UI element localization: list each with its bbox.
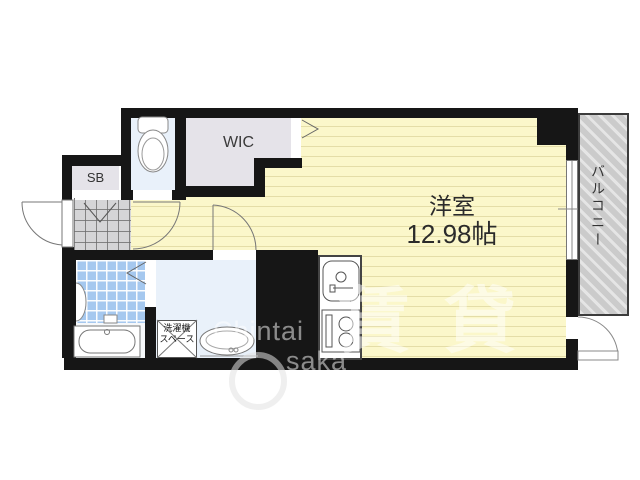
balcony-doorway	[566, 317, 578, 339]
wall-wic-bottom	[175, 186, 265, 197]
watermark-brand-top: Chintai	[213, 316, 304, 347]
front-door-icon	[22, 200, 73, 247]
wall-wic-step-vertical	[254, 158, 265, 197]
laundry-line1: 洗濯機	[156, 323, 198, 334]
balcony-door-icon	[578, 317, 618, 360]
wall-top	[121, 108, 578, 118]
toilet-room-floor	[131, 118, 175, 190]
washroom-doorway	[213, 250, 256, 260]
wall-toilet-left	[121, 108, 131, 200]
wall-right-mid	[566, 260, 578, 317]
main-room-area: 12.98帖	[372, 220, 532, 249]
wall-bath-washroom-divider	[145, 307, 156, 358]
window	[566, 160, 578, 260]
wall-right-lower	[566, 339, 578, 358]
watermark-ghost-text: 賃貸	[338, 262, 550, 367]
bathroom-opening	[145, 260, 156, 307]
bathroom-tile-area	[76, 260, 145, 323]
wic-label: WIC	[186, 134, 291, 152]
laundry-line2: スペース	[156, 334, 198, 345]
wic-floor-lower	[186, 158, 254, 186]
wall-bath-left	[62, 250, 76, 358]
entrance-tile-floor	[74, 198, 131, 252]
wall-toilet-wic-divider	[175, 108, 186, 197]
sb-opening	[75, 190, 121, 200]
wall-right-upper	[566, 108, 578, 160]
balcony-label: バルコニー	[588, 164, 608, 294]
main-room-name: 洋室	[372, 194, 532, 220]
shoe-box-label: SB	[72, 170, 119, 185]
wall-wic-step-horizontal	[265, 158, 302, 168]
floor-plan: 洋室 12.98帖 WIC SB バルコニー 洗濯機 スペース Chintai …	[0, 0, 640, 480]
toilet-doorway	[133, 190, 172, 200]
main-room-label: 洋室 12.98帖	[372, 194, 532, 249]
wic-opening	[291, 118, 301, 158]
laundry-space-label: 洗濯機 スペース	[156, 323, 198, 345]
